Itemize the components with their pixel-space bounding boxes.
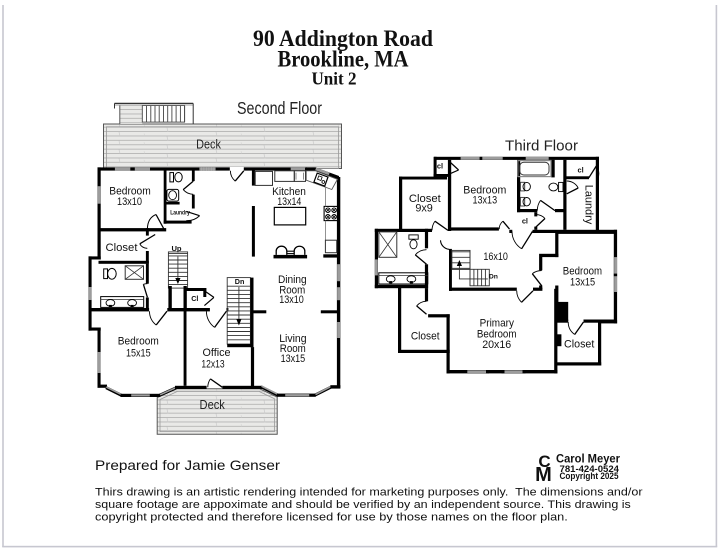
svg-text:cl: cl [437,161,443,170]
svg-text:Cl: Cl [191,294,198,303]
svg-text:Unit 2: Unit 2 [312,69,357,89]
svg-text:cl: cl [522,216,528,225]
svg-text:15x15: 15x15 [126,348,151,360]
svg-text:cl: cl [578,165,584,174]
svg-text:Dn: Dn [235,277,245,286]
svg-text:M: M [535,464,552,486]
svg-text:20x16: 20x16 [482,339,511,351]
svg-text:Closet: Closet [411,330,440,342]
svg-text:13x10: 13x10 [279,294,304,306]
svg-text:16x10: 16x10 [483,251,508,263]
svg-text:Deck: Deck [196,138,221,152]
svg-text:Prepared for Jamie Genser: Prepared for Jamie Genser [95,458,281,473]
svg-text:Closet: Closet [564,339,595,351]
svg-text:copyright protected and theref: copyright protected and therefore licens… [95,511,568,523]
svg-text:Brookline, MA: Brookline, MA [278,46,409,71]
svg-text:9x9: 9x9 [415,203,433,215]
svg-text:13x15: 13x15 [570,277,595,289]
svg-text:Laundry: Laundry [583,185,595,225]
svg-text:13x10: 13x10 [117,196,142,208]
svg-text:Closet: Closet [106,242,139,254]
svg-text:13x15: 13x15 [281,353,306,365]
svg-text:Second Floor: Second Floor [237,98,322,118]
svg-text:Copyright 2025: Copyright 2025 [560,471,619,481]
svg-text:Up: Up [171,244,181,253]
svg-text:13x13: 13x13 [473,194,498,206]
svg-text:Third Floor: Third Floor [505,138,578,155]
svg-text:Dn: Dn [489,274,498,281]
svg-text:Thirs drawing is an artistic r: Thirs drawing is an artistic rendering i… [95,487,643,499]
svg-text:13x14: 13x14 [277,196,301,208]
svg-text:12x13: 12x13 [201,358,224,370]
svg-text:Deck: Deck [200,398,226,412]
svg-text:square footage are appoximate: square footage are appoximate and should… [95,499,631,511]
svg-text:Office: Office [203,347,231,359]
svg-text:Laundry: Laundry [170,209,190,216]
svg-text:Bedroom: Bedroom [118,335,159,347]
